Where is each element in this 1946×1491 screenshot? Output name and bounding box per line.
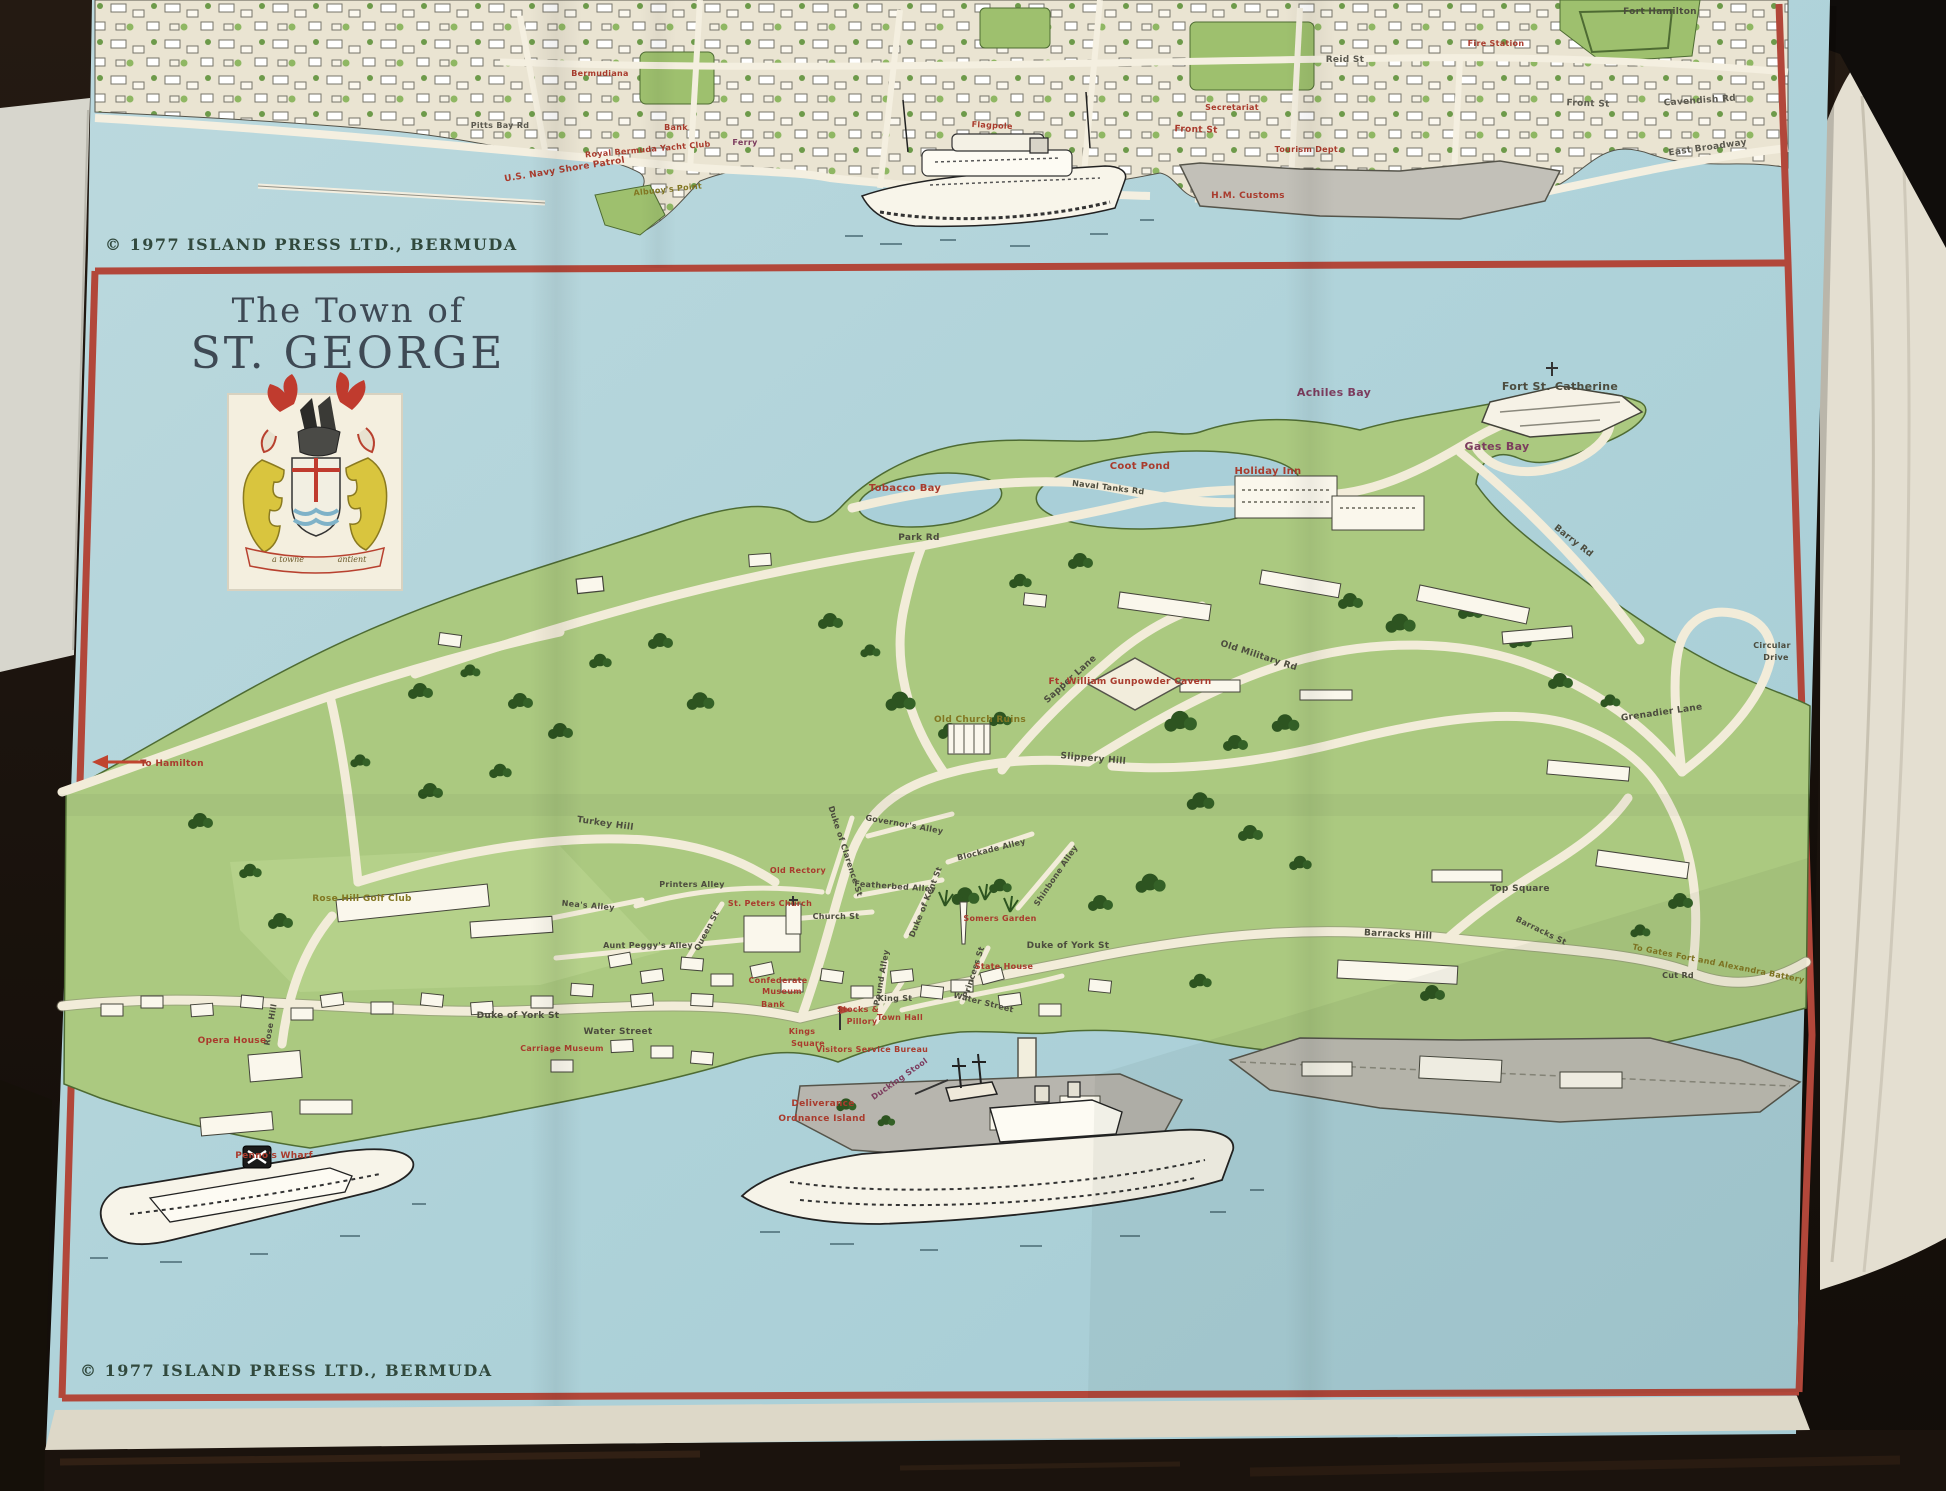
town-crest: a towne antient [228, 372, 402, 590]
desk-corner-bottom-left [0, 1080, 52, 1491]
old-church-ruins-building [948, 724, 990, 754]
photo-of-folded-map: Pitts Bay Rd Bermudiana U.S. Navy Shore … [0, 0, 1946, 1491]
ship-funnel [1030, 138, 1048, 153]
map-photo-canvas: Pitts Bay Rd Bermudiana U.S. Navy Shore … [0, 0, 1946, 1491]
opera-house-building [248, 1050, 302, 1081]
